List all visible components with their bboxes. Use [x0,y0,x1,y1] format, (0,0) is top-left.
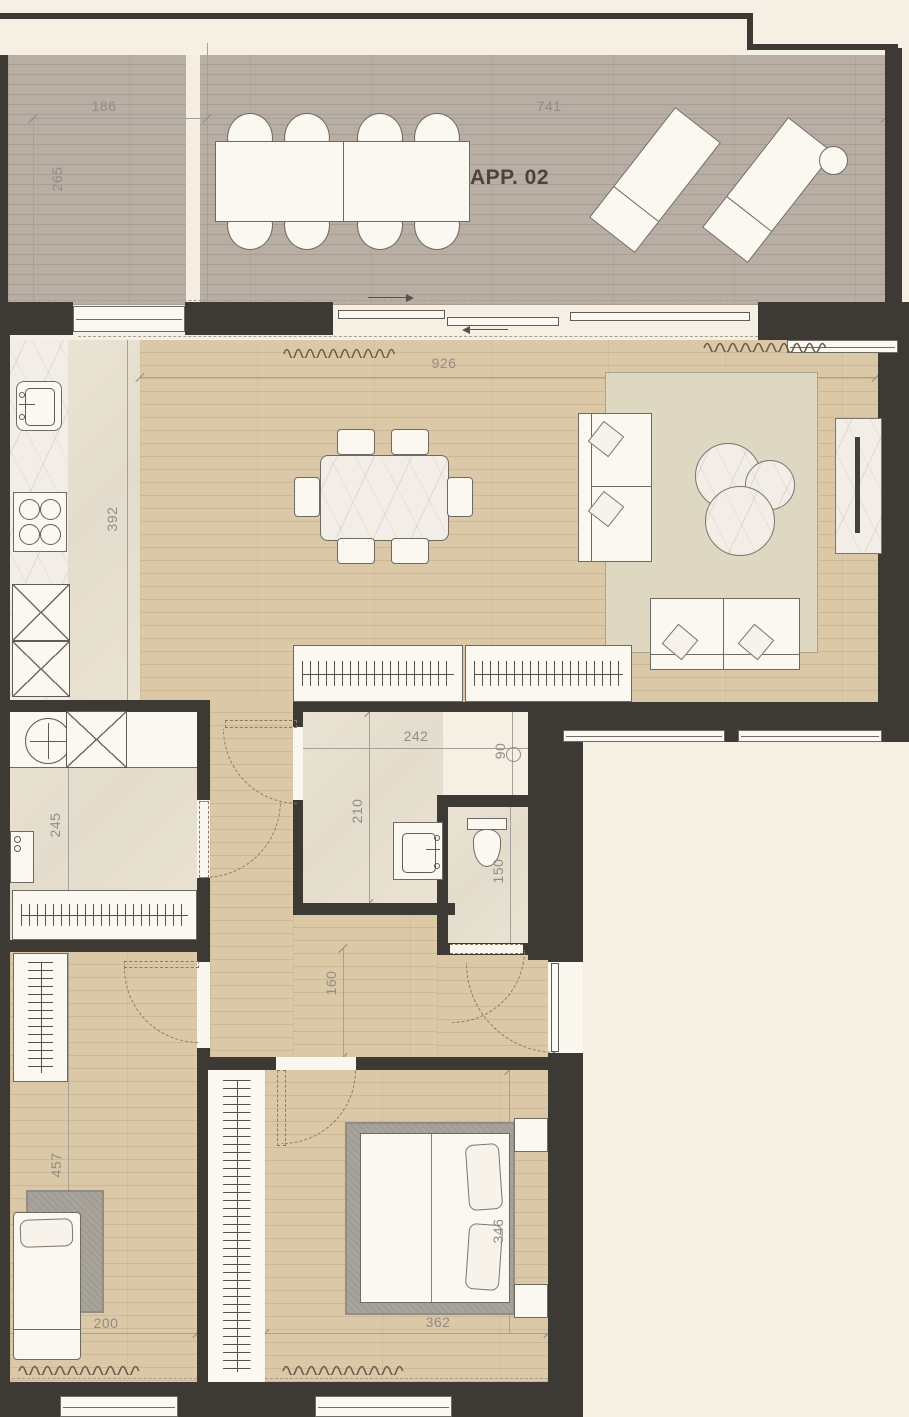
dimension-line [33,118,885,119]
radiator-icon [283,344,401,358]
dim-label: 90 [492,727,508,775]
nightstand [514,1118,548,1152]
dim-label: 741 [525,98,573,114]
dim-label: 242 [392,728,440,744]
hallway-floor [293,915,437,1057]
dim-label: 245 [47,801,63,849]
sliding-door-panel [570,312,750,321]
sliding-door-panel [338,310,445,319]
dining-table [320,455,449,541]
wardrobe [208,1070,265,1382]
hanging-rail-icon [302,654,454,693]
sofa-two-seat [650,598,800,670]
terrace-divider [186,55,200,305]
window [563,730,725,742]
radiator-icon [282,1361,410,1375]
apartment-title: APP. 02 [470,166,549,190]
wall [0,302,10,1417]
dim-label: 392 [104,495,120,543]
wall [0,13,747,19]
wall [185,302,333,335]
hanging-rail-icon [21,898,188,932]
nightstand [514,1284,548,1318]
hanging-rail-icon [474,654,623,693]
kitchen-sink-icon [16,381,62,431]
slide-direction-arrow-icon [464,329,508,330]
dimension-line [369,712,370,903]
wall [10,302,73,335]
wall [293,702,530,712]
window [738,730,882,742]
door-leaf [124,961,199,968]
dimension-line [343,948,344,1057]
shaft-symbol [506,747,521,762]
dim-label: 457 [48,1141,64,1189]
dim-label: 160 [323,959,339,1007]
coffee-table [705,486,775,556]
dim-label: 265 [49,155,65,203]
kitchen-window [73,306,185,332]
hanging-rail-icon [215,1080,258,1372]
wall [747,44,898,50]
wall [197,1057,583,1070]
wall [437,795,530,807]
hanging-rail-icon [21,962,60,1073]
dim-label: 210 [349,787,365,835]
terrace-dining-table [215,141,470,222]
dimension-line [207,43,208,305]
single-bed [13,1212,81,1360]
dining-chair [294,477,320,517]
radiator-icon [703,338,833,352]
bedroom2-window [315,1396,452,1417]
dim-label: 186 [80,98,128,114]
tv [855,437,860,533]
dashed-line [265,1378,548,1379]
dimension-line [510,807,511,943]
dim-label: 346 [490,1207,506,1255]
wall [528,712,583,960]
wall [0,940,210,952]
wardrobe [12,890,197,940]
washing-machine-icon [25,718,71,764]
wall [878,340,909,742]
wardrobe [465,645,632,702]
dashed-line [12,1378,197,1379]
sofa-three-seat [578,413,652,562]
dining-chair [391,429,429,455]
door-leaf [277,1070,286,1146]
dining-chair [337,538,375,564]
wall [293,903,455,915]
floor-plan: APP. 02 186 741 265 926 392 245 242 210 … [0,0,909,1417]
dim-label: 362 [414,1314,462,1330]
wardrobe [293,645,463,702]
wall [885,48,902,307]
vanity-sink-icon [393,822,443,880]
dashed-line [8,300,758,301]
wall [0,55,8,305]
dim-label: 200 [82,1315,130,1331]
dim-label: 150 [490,847,506,895]
dimension-line [33,118,34,304]
cooktop-icon [13,492,67,552]
wall [758,302,909,340]
door-leaf [199,801,209,878]
dim-label: 926 [420,355,468,371]
slide-direction-arrow-icon [368,297,412,298]
door-leaf [225,720,297,728]
dining-chair [391,538,429,564]
tall-cabinet-icon [12,641,70,697]
double-bed [360,1133,510,1303]
tall-cabinet-icon [12,584,70,641]
dashed-line [78,336,758,337]
tall-cabinet-icon [66,711,127,768]
dimension-line [265,1333,548,1334]
wardrobe [13,953,68,1082]
appliance-icon [10,831,34,883]
side-table [819,146,848,175]
dining-chair [337,429,375,455]
radiator-icon [18,1361,146,1375]
door-opening-bedroom2 [276,1057,356,1070]
dining-chair [447,477,473,517]
dimension-line [127,340,128,702]
entry-door-leaf [551,963,559,1052]
bedroom1-window [60,1396,178,1417]
